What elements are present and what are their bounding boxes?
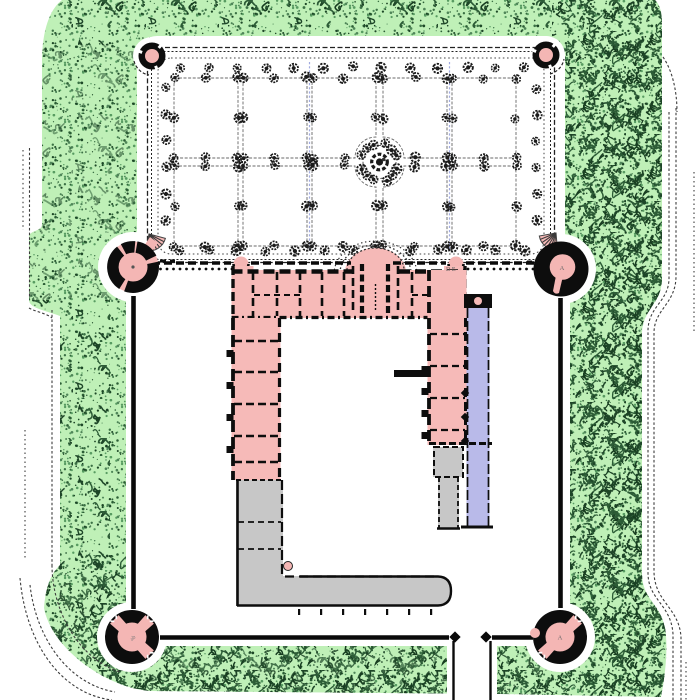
svg-text:A: A: [558, 635, 563, 642]
svg-text:A: A: [560, 265, 565, 272]
svg-text:D E: D E: [446, 267, 456, 273]
